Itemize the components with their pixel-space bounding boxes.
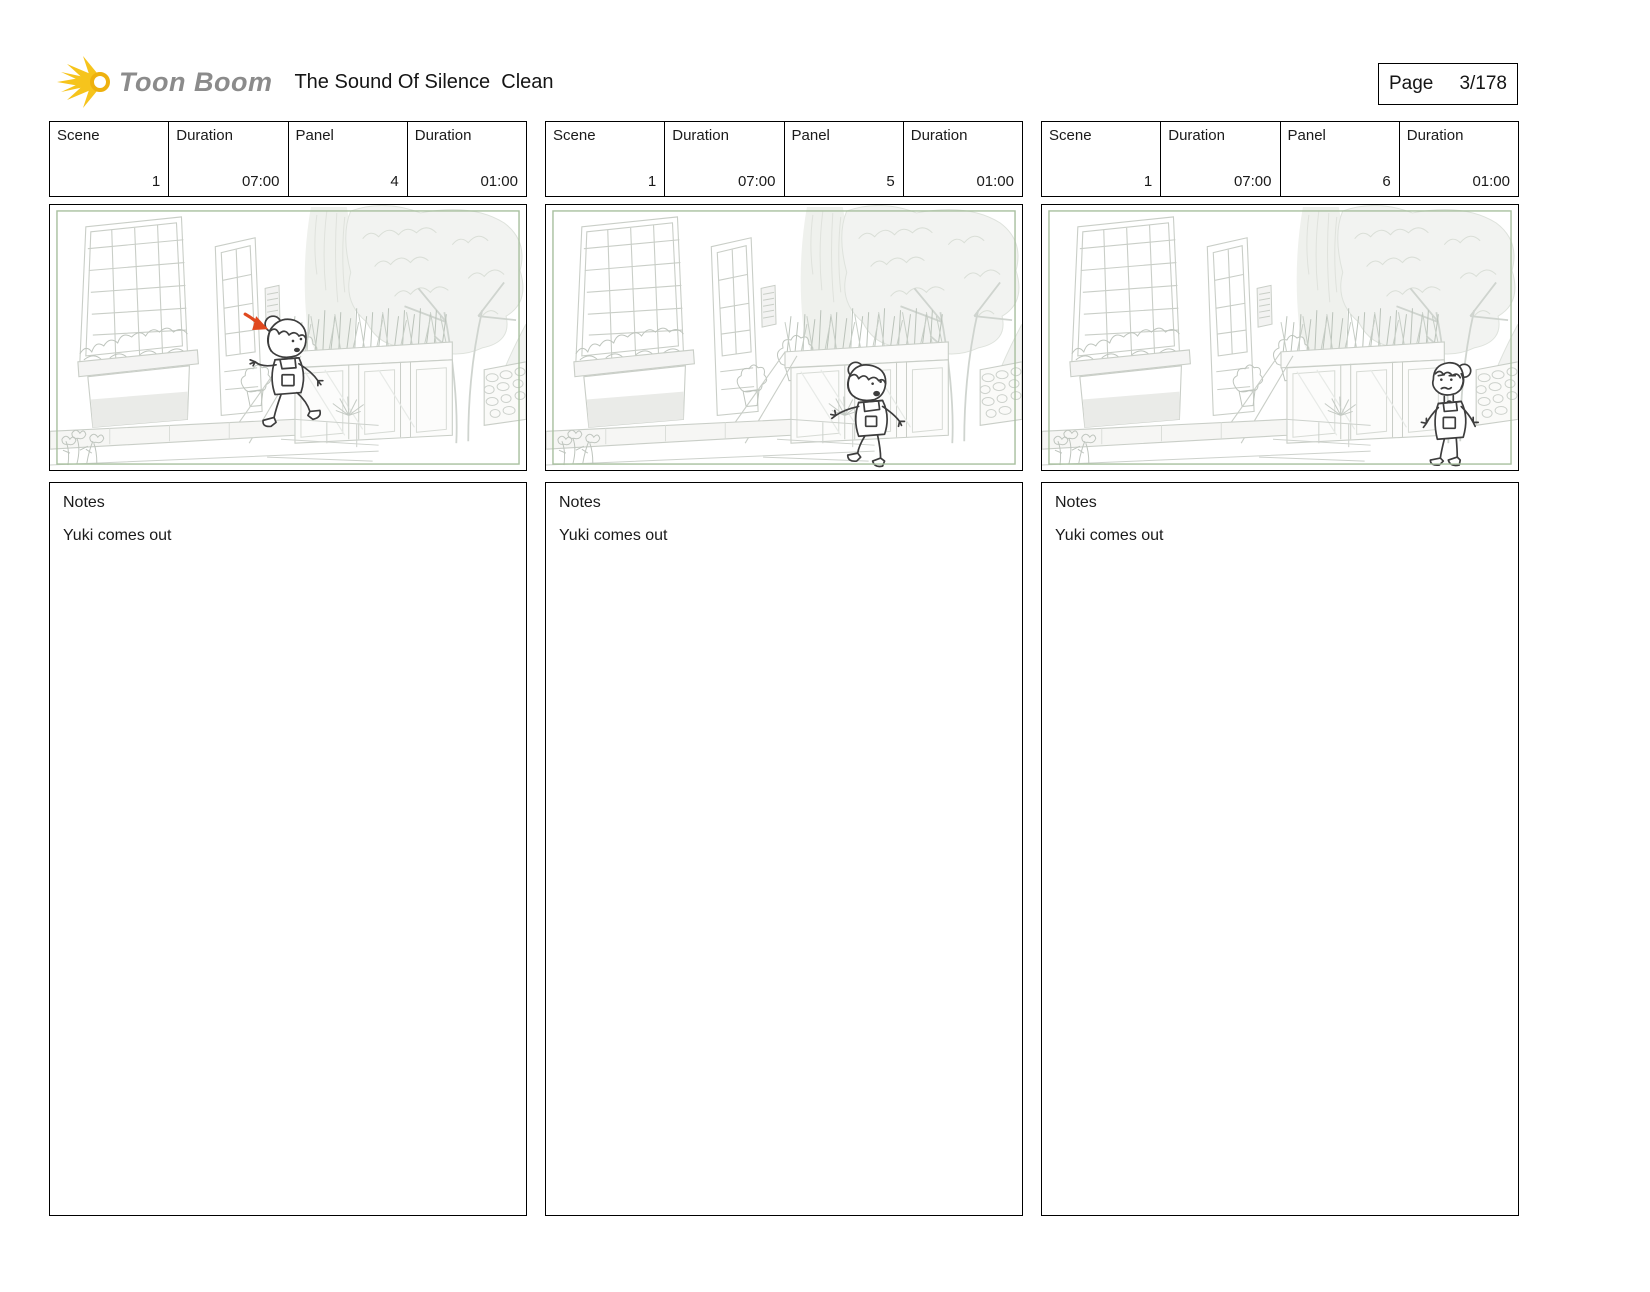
- panel-duration-value: 01:00: [480, 173, 518, 190]
- notes-box: Notes Yuki comes out: [545, 482, 1023, 1216]
- scene-value: 1: [648, 173, 656, 190]
- storyboard-column-3: Scene 1 Duration 07:00 Panel 6 Duration …: [1041, 121, 1519, 1216]
- storyboard-panel-image: [49, 204, 527, 471]
- meta-cell-panel: Panel 5: [784, 122, 903, 197]
- duration-label: Duration: [1168, 127, 1225, 144]
- duration-label: Duration: [911, 127, 968, 144]
- notes-label: Notes: [1055, 494, 1505, 512]
- scene-label: Scene: [553, 127, 596, 144]
- scene-duration-value: 07:00: [738, 173, 776, 190]
- note-text: Yuki comes out: [63, 527, 513, 545]
- panel-value: 5: [886, 173, 894, 190]
- panel-label: Panel: [296, 127, 334, 144]
- meta-cell-panel-duration: Duration 01:00: [407, 122, 526, 197]
- meta-cell-panel-duration: Duration 01:00: [903, 122, 1022, 197]
- scene-label: Scene: [57, 127, 100, 144]
- page-number: 3/178: [1459, 73, 1507, 95]
- notes-box: Notes Yuki comes out: [1041, 482, 1519, 1216]
- meta-cell-scene-duration: Duration 07:00: [1161, 122, 1280, 197]
- storyboard-column-1: Scene 1 Duration 07:00 Panel 4 Duration …: [49, 121, 527, 1216]
- panel-duration-value: 01:00: [1472, 173, 1510, 190]
- duration-label: Duration: [176, 127, 233, 144]
- storyboard-panel-image: [1041, 204, 1519, 471]
- notes-label: Notes: [63, 494, 513, 512]
- notes-box: Notes Yuki comes out: [49, 482, 527, 1216]
- meta-cell-panel: Panel 4: [288, 122, 407, 197]
- page-number-box: Page 3/178: [1378, 63, 1518, 105]
- scene-duration-value: 07:00: [1234, 173, 1272, 190]
- duration-label: Duration: [1407, 127, 1464, 144]
- note-text: Yuki comes out: [559, 527, 1009, 545]
- meta-cell-scene: Scene 1: [1042, 122, 1161, 197]
- page-header: Toon Boom The Sound Of Silence Clean: [55, 56, 554, 108]
- storyboard-column-2: Scene 1 Duration 07:00 Panel 5 Duration …: [545, 121, 1023, 1216]
- panel-meta-table: Scene 1 Duration 07:00 Panel 4 Duration …: [49, 121, 527, 197]
- logo-text: Toon Boom: [119, 67, 272, 98]
- panel-meta-table: Scene 1 Duration 07:00 Panel 5 Duration …: [545, 121, 1023, 197]
- duration-label: Duration: [672, 127, 729, 144]
- storyboard-row: Scene 1 Duration 07:00 Panel 4 Duration …: [49, 121, 1519, 1216]
- toonboom-logo-icon: [55, 56, 117, 108]
- document-title: The Sound Of Silence Clean: [294, 71, 553, 94]
- storyboard-panel-image: [545, 204, 1023, 471]
- meta-cell-panel: Panel 6: [1280, 122, 1399, 197]
- background-sketch: [546, 205, 1022, 465]
- panel-drawing-4: [50, 205, 526, 470]
- note-text: Yuki comes out: [1055, 527, 1505, 545]
- panel-value: 4: [390, 173, 398, 190]
- meta-cell-scene-duration: Duration 07:00: [169, 122, 288, 197]
- meta-cell-scene: Scene 1: [50, 122, 169, 197]
- notes-label: Notes: [559, 494, 1009, 512]
- panel-drawing-5: [546, 205, 1022, 470]
- panel-drawing-6: [1042, 205, 1518, 470]
- duration-label: Duration: [415, 127, 472, 144]
- meta-cell-scene: Scene 1: [546, 122, 665, 197]
- scene-duration-value: 07:00: [242, 173, 280, 190]
- scene-label: Scene: [1049, 127, 1092, 144]
- panel-label: Panel: [1288, 127, 1326, 144]
- meta-cell-panel-duration: Duration 01:00: [1399, 122, 1518, 197]
- scene-value: 1: [152, 173, 160, 190]
- panel-meta-table: Scene 1 Duration 07:00 Panel 6 Duration …: [1041, 121, 1519, 197]
- panel-label: Panel: [792, 127, 830, 144]
- meta-cell-scene-duration: Duration 07:00: [665, 122, 784, 197]
- panel-duration-value: 01:00: [976, 173, 1014, 190]
- scene-value: 1: [1144, 173, 1152, 190]
- panel-value: 6: [1382, 173, 1390, 190]
- page-label: Page: [1389, 73, 1433, 95]
